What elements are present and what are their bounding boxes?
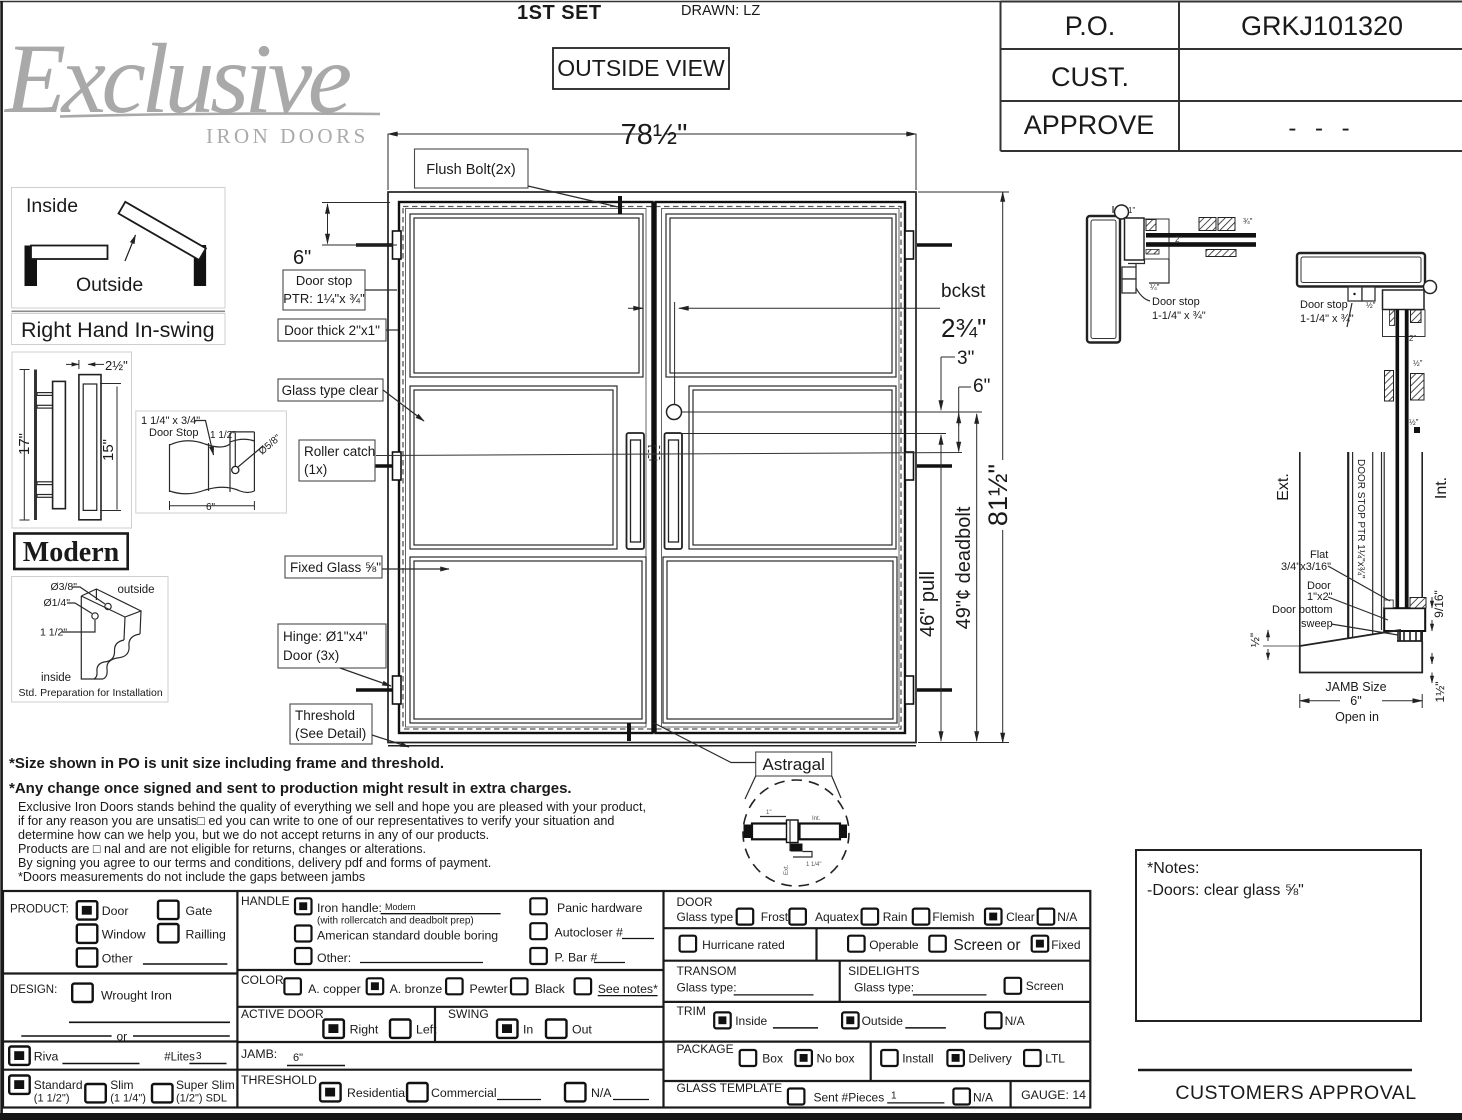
svg-text:Riva: Riva [34, 1050, 59, 1064]
svg-text:6": 6" [1350, 694, 1361, 708]
svg-text:6": 6" [293, 247, 311, 269]
svg-text:Slim: Slim [110, 1078, 133, 1092]
svg-text:Inside: Inside [735, 1014, 767, 1028]
svg-text:Pewter: Pewter [470, 982, 508, 996]
svg-text:78½": 78½" [621, 119, 688, 151]
svg-text:Fixed Glass ⅝": Fixed Glass ⅝" [290, 560, 381, 575]
svg-text:N/A: N/A [1057, 910, 1077, 924]
svg-text:Right Hand In-swing: Right Hand In-swing [21, 318, 215, 342]
svg-text:½": ½" [1248, 633, 1262, 647]
svg-text:Commercial: Commercial [431, 1086, 497, 1100]
svg-text:Super Slim: Super Slim [176, 1078, 235, 1092]
svg-text:Operable: Operable [869, 938, 919, 952]
svg-text:Delivery: Delivery [968, 1052, 1011, 1066]
svg-text:*Doors measurements do not inc: *Doors measurements do not include the g… [18, 870, 365, 884]
svg-text:3/4"x3/16": 3/4"x3/16" [1281, 561, 1331, 573]
svg-text:½": ½" [1366, 301, 1376, 310]
svg-text:DOOR STOP PTR 1¼"x¾": DOOR STOP PTR 1¼"x¾" [1355, 459, 1367, 579]
svg-text:46" pull: 46" pull [917, 571, 939, 637]
svg-text:Box: Box [762, 1052, 783, 1066]
svg-text:JAMB:: JAMB: [241, 1047, 277, 1061]
svg-text:15": 15" [100, 439, 117, 461]
svg-text:Exclusive Iron Doors stands be: Exclusive Iron Doors stands behind the q… [18, 800, 646, 814]
svg-text:Threshold: Threshold [295, 708, 355, 723]
svg-text:Residential: Residential [347, 1086, 408, 1100]
svg-text:3: 3 [196, 1051, 202, 1062]
svg-text:TRANSOM: TRANSOM [677, 964, 737, 978]
svg-text:Std. Preparation for Installat: Std. Preparation for Installation [19, 687, 163, 699]
svg-text:Door bottom: Door bottom [1272, 604, 1333, 616]
svg-text:(with rollercatch and deadbolt: (with rollercatch and deadbolt prep) [317, 916, 474, 927]
svg-text:Screen: Screen [1026, 979, 1064, 993]
svg-text:49"¢ deadbolt: 49"¢ deadbolt [953, 506, 975, 629]
svg-text:17": 17" [16, 433, 33, 455]
svg-text:¾": ¾" [1243, 217, 1253, 226]
svg-text:3": 3" [957, 348, 974, 369]
svg-text:-Doors: clear glass ⅝": -Doors: clear glass ⅝" [1147, 882, 1304, 899]
svg-text:Flush Bolt(2x): Flush Bolt(2x) [426, 162, 515, 178]
svg-text:Modern: Modern [23, 537, 120, 568]
svg-text:Door: Door [102, 904, 129, 918]
svg-text:Rain: Rain [883, 910, 908, 924]
svg-text:Door (3x): Door (3x) [283, 648, 339, 663]
svg-text:Fixed: Fixed [1051, 938, 1080, 952]
svg-text:2": 2" [1175, 235, 1182, 244]
svg-text:N/A: N/A [973, 1091, 993, 1105]
svg-text:2": 2" [1409, 334, 1416, 343]
svg-text:6": 6" [293, 1052, 303, 1064]
svg-text:OUTSIDE VIEW: OUTSIDE VIEW [557, 55, 725, 81]
svg-text:A. bronze: A. bronze [390, 982, 443, 996]
svg-text:DESIGN:: DESIGN: [10, 984, 57, 996]
svg-text:Clear: Clear [1006, 910, 1035, 924]
svg-text:DOOR: DOOR [677, 895, 713, 909]
svg-text:N/A: N/A [591, 1086, 612, 1100]
svg-text:Int.: Int. [812, 816, 821, 822]
svg-text:#Lites: #Lites [164, 1052, 195, 1064]
svg-text:Install: Install [902, 1052, 933, 1066]
svg-text:SIDELIGHTS: SIDELIGHTS [848, 964, 919, 978]
svg-text:Products are □ nal and are not: Products are □ nal and are not eligible … [18, 842, 426, 856]
svg-text:Ext.: Ext. [784, 864, 790, 875]
svg-text:Ext.: Ext. [1275, 473, 1292, 501]
svg-text:*Any change once signed and se: *Any change once signed and sent to prod… [9, 780, 572, 797]
svg-text:(1 1/2"): (1 1/2") [34, 1093, 70, 1105]
svg-text:(1 1/4"): (1 1/4") [110, 1093, 146, 1105]
svg-text:Panic hardware: Panic hardware [557, 901, 643, 915]
svg-text:Door stop: Door stop [296, 273, 352, 288]
svg-text:Roller catch: Roller catch [304, 444, 375, 459]
svg-text:PACKAGE: PACKAGE [677, 1042, 734, 1056]
svg-text:2½": 2½" [105, 358, 128, 373]
svg-text:1": 1" [766, 810, 771, 816]
svg-text:Ø1/4": Ø1/4" [44, 597, 71, 609]
svg-text:1ST SET: 1ST SET [517, 2, 602, 24]
svg-text:Sent #Pieces: Sent #Pieces [814, 1091, 885, 1105]
svg-text:P. Bar #: P. Bar # [555, 951, 598, 965]
svg-text:N/A: N/A [1005, 1014, 1025, 1028]
svg-text:6": 6" [973, 376, 990, 397]
svg-text:bckst: bckst [941, 281, 986, 302]
svg-text:(See Detail): (See Detail) [295, 726, 366, 741]
svg-text:JAMB Size: JAMB Size [1325, 680, 1386, 694]
svg-text:1": 1" [1128, 206, 1135, 215]
svg-text:GRKJ101320: GRKJ101320 [1241, 11, 1403, 41]
svg-text:1½": 1½" [1433, 682, 1447, 703]
svg-text:Left: Left [416, 1023, 437, 1037]
svg-text:Glass type: Glass type [677, 910, 734, 924]
svg-text:Black: Black [535, 982, 566, 996]
svg-text:1 1/4": 1 1/4" [806, 862, 821, 868]
svg-text:Modern: Modern [385, 902, 416, 912]
svg-text:TRIM: TRIM [677, 1004, 706, 1018]
svg-text:Door stop: Door stop [1300, 299, 1348, 311]
svg-text:- - -: - - - [1288, 115, 1355, 142]
svg-text:CUSTOMERS APPROVAL: CUSTOMERS APPROVAL [1175, 1082, 1416, 1104]
svg-text:THRESHOLD: THRESHOLD [241, 1073, 317, 1087]
svg-text:Railling: Railling [186, 928, 226, 942]
svg-text:Iron handle:: Iron handle: [317, 901, 382, 915]
svg-text:81½": 81½" [983, 464, 1013, 526]
svg-text:Autocloser #: Autocloser # [555, 926, 624, 940]
svg-text:Other:: Other: [317, 951, 351, 965]
svg-text:Hurricane rated: Hurricane rated [702, 938, 785, 952]
svg-text:PRODUCT:: PRODUCT: [10, 904, 69, 916]
svg-text:Screen or: Screen or [953, 937, 1020, 954]
svg-text:Standard: Standard [34, 1078, 83, 1092]
svg-text:A. copper: A. copper [308, 982, 361, 996]
svg-text:No box: No box [817, 1052, 855, 1066]
svg-text:Gate: Gate [186, 904, 213, 918]
svg-text:Aquatex: Aquatex [815, 910, 859, 924]
svg-text:ACTIVE DOOR: ACTIVE DOOR [241, 1007, 324, 1021]
svg-text:(1/2") SDL: (1/2") SDL [176, 1093, 227, 1105]
svg-text:GAUGE: 14: GAUGE: 14 [1021, 1088, 1086, 1102]
svg-text:CUST.: CUST. [1051, 62, 1129, 92]
svg-text:In: In [523, 1023, 533, 1037]
svg-text:Right: Right [350, 1023, 379, 1037]
svg-text:P.O.: P.O. [1065, 11, 1116, 41]
svg-text:Ø5/8": Ø5/8" [257, 432, 284, 457]
svg-text:1-1/4" x ¾": 1-1/4" x ¾" [1300, 313, 1354, 325]
svg-text:Flat: Flat [1310, 549, 1328, 561]
svg-text:1 1/4" x 3/4": 1 1/4" x 3/4" [141, 415, 200, 427]
svg-text:By signing you agree to our te: By signing you agree to our terms and co… [18, 856, 491, 870]
svg-text:Flemish: Flemish [932, 910, 974, 924]
svg-text:Door stop: Door stop [1152, 296, 1200, 308]
svg-text:Astragal: Astragal [763, 755, 825, 774]
svg-text:inside: inside [41, 672, 71, 684]
svg-text:SWING: SWING [448, 1007, 489, 1021]
svg-text:determine how can we help you,: determine how can we help you, but we do… [18, 828, 489, 842]
svg-text:Glass type clear: Glass type clear [282, 383, 379, 398]
svg-text:COLOR: COLOR [241, 973, 284, 987]
svg-text:Open in: Open in [1335, 710, 1379, 724]
svg-text:Hinge: Ø1"x4": Hinge: Ø1"x4" [283, 629, 368, 644]
svg-text:Frost: Frost [761, 910, 789, 924]
svg-text:1 1/2": 1 1/2" [210, 430, 236, 441]
svg-text:Door thick 2"x1": Door thick 2"x1" [284, 323, 380, 338]
svg-text:Exclusive: Exclusive [3, 23, 351, 134]
svg-text:PTR: 1¼"x ¾": PTR: 1¼"x ¾" [283, 291, 365, 306]
svg-text:outside: outside [118, 584, 155, 596]
svg-text:Inside: Inside [26, 195, 78, 217]
svg-text:Out: Out [572, 1023, 592, 1037]
svg-text:sweep: sweep [1301, 618, 1333, 630]
svg-text:APPROVE: APPROVE [1024, 110, 1155, 140]
svg-text:½": ½" [1409, 418, 1419, 427]
svg-text:1-1/4" x ¾": 1-1/4" x ¾" [1152, 310, 1206, 322]
svg-text:(1x): (1x) [304, 462, 327, 477]
svg-text:Glass type:: Glass type: [677, 981, 737, 995]
svg-text:9/16": 9/16" [1432, 590, 1446, 618]
svg-text:*Size shown in PO is unit size: *Size shown in PO is unit size including… [9, 755, 444, 772]
svg-text:1: 1 [891, 1091, 897, 1102]
svg-text:Other: Other [102, 952, 133, 966]
svg-text:HANDLE: HANDLE [241, 894, 290, 908]
svg-text:Int.: Int. [1433, 477, 1450, 499]
svg-text:¼": ¼" [1150, 283, 1160, 292]
svg-text:½": ½" [1413, 359, 1423, 368]
svg-text:GLASS TEMPLATE: GLASS TEMPLATE [677, 1081, 783, 1095]
svg-text:LTL: LTL [1045, 1052, 1065, 1066]
svg-text:Outside: Outside [862, 1014, 904, 1028]
svg-text:Outside: Outside [76, 274, 143, 296]
svg-text:or: or [117, 1030, 128, 1044]
svg-text:Glass type:: Glass type: [854, 981, 914, 995]
svg-text:Window: Window [102, 928, 146, 942]
svg-text:Wrought Iron: Wrought Iron [101, 989, 172, 1003]
svg-text:American standard double borin: American standard double boring [317, 929, 498, 943]
svg-text:DRAWN: LZ: DRAWN: LZ [681, 3, 760, 19]
svg-text:Door Stop: Door Stop [149, 427, 199, 439]
svg-text:*Notes:: *Notes: [1147, 860, 1199, 877]
svg-text:See notes*: See notes* [598, 982, 658, 996]
svg-text:IRON DOORS: IRON DOORS [206, 124, 369, 148]
svg-text:2¾": 2¾" [941, 313, 986, 343]
svg-text:if for any reason you are unsa: if for any reason you are unsatis□ ed yo… [18, 814, 614, 828]
svg-text:6": 6" [206, 502, 216, 513]
